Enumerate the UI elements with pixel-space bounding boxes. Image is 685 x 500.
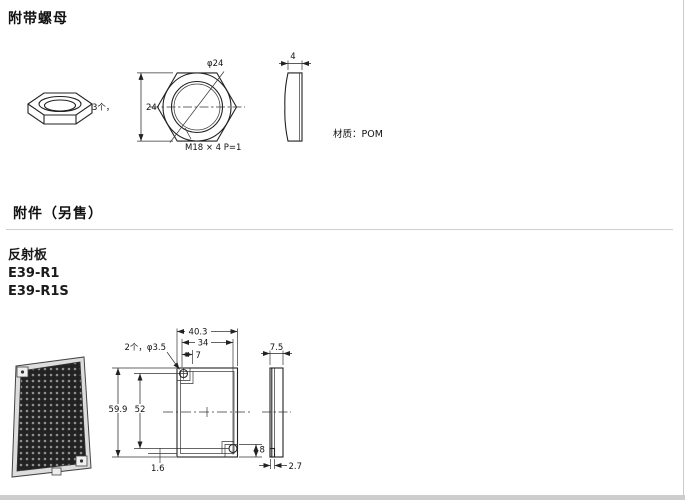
reflector-model-e39-r1: E39-R1 [8, 265, 69, 283]
nut-front-view: φ24 3个， 24 M18 × 4 P=1 [92, 59, 245, 153]
page-right-border [683, 0, 684, 500]
technical-drawing-canvas: φ24 3个， 24 M18 × 4 P=1 4 材质：POM [0, 0, 685, 500]
nut-dim-qty: 3个， [92, 103, 114, 113]
reflector-model-block: 反射板 E39-R1 E39-R1S [8, 247, 69, 301]
section-title-attached-nut: 附带螺母 [8, 8, 68, 28]
refl-dim-one-six: 1.6 [151, 464, 165, 474]
refl-dim-hole-span: 34 [198, 339, 209, 349]
nut-dim-thread: M18 × 4 P=1 [185, 143, 241, 153]
refl-dim-side-width: 7.5 [270, 343, 284, 353]
nut-dim-phi24: φ24 [207, 59, 223, 69]
refl-dim-hole-height: 52 [135, 405, 146, 415]
refl-dim-eight: 8 [260, 446, 265, 456]
reflector-side-view: 7.5 2.7 [259, 343, 302, 472]
refl-dim-holes: 2个，φ3.5 [124, 343, 166, 353]
nut-side-view: 4 材质：POM [279, 52, 383, 141]
nut-material-label: 材质：POM [333, 128, 383, 140]
section-divider [6, 229, 673, 230]
nut-dim-24: 24 [146, 103, 157, 113]
section-title-accessories: 附件（另售） [13, 203, 103, 223]
refl-dim-offset7: 7 [196, 351, 201, 361]
refl-dim-two-seven: 2.7 [289, 462, 303, 472]
page-bottom-bar [0, 495, 685, 500]
refl-dim-height: 59.9 [109, 405, 128, 415]
reflector-front-view: 40.3 34 7 2个，φ3.5 59.9 52 8 1.6 [107, 327, 265, 475]
refl-dim-width: 40.3 [189, 328, 208, 338]
datasheet-page: { "headings": { "section1": "附带螺母", "sec… [0, 0, 685, 500]
reflector-label: 反射板 [8, 247, 69, 265]
nut-3d-sketch [28, 93, 92, 124]
nut-dim-thickness: 4 [290, 52, 295, 62]
reflector-3d-sketch [12, 357, 91, 477]
reflector-model-e39-r1s: E39-R1S [8, 283, 69, 301]
